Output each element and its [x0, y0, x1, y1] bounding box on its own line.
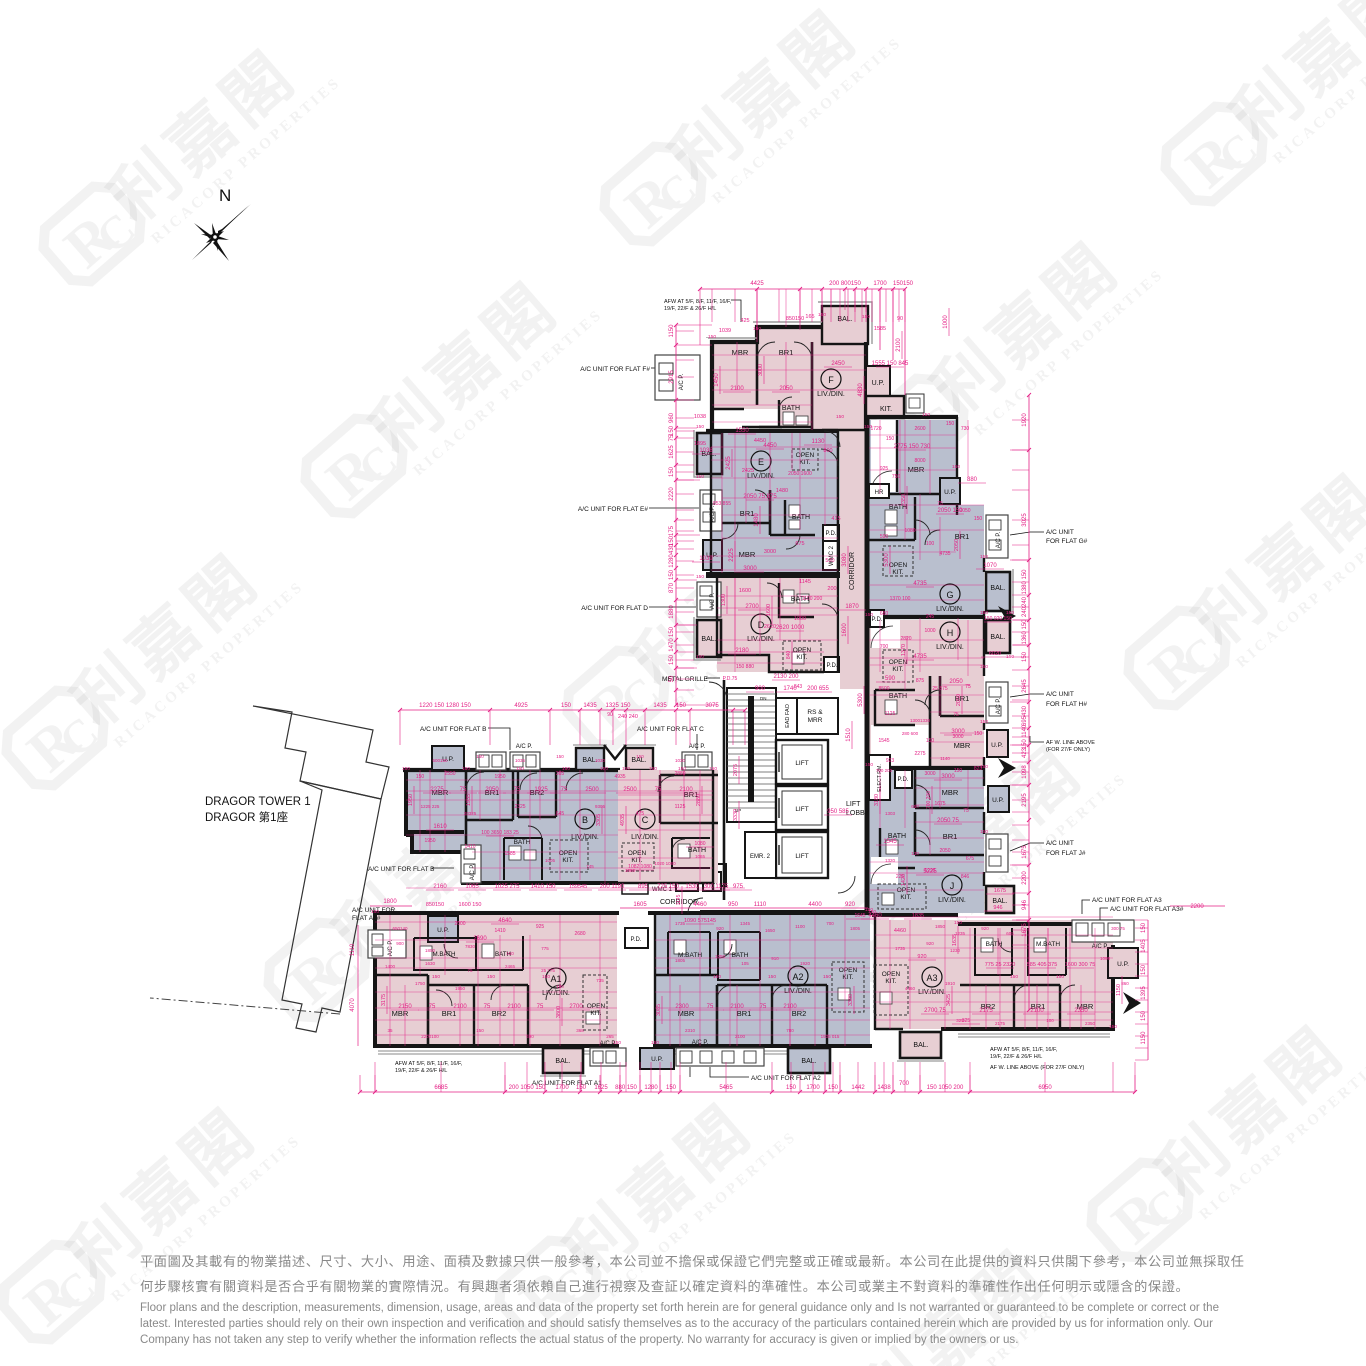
svg-text:150: 150: [922, 412, 930, 418]
svg-text:1039: 1039: [699, 556, 713, 562]
svg-text:2425: 2425: [726, 456, 732, 470]
svg-text:1098: 1098: [1100, 956, 1111, 961]
svg-text:75: 75: [484, 1004, 491, 1010]
svg-text:75: 75: [655, 787, 662, 793]
svg-text:N: N: [219, 186, 231, 205]
svg-text:1030: 1030: [675, 758, 686, 763]
svg-text:A/C UNIT FOR FLAT B: A/C UNIT FOR FLAT B: [368, 866, 434, 873]
svg-text:A/C P.: A/C P.: [710, 592, 716, 609]
svg-text:1405: 1405: [1141, 939, 1147, 953]
svg-text:1450: 1450: [714, 373, 720, 387]
svg-text:2180: 2180: [735, 648, 749, 654]
svg-text:1545: 1545: [878, 738, 889, 744]
svg-text:FOR FLAT G#: FOR FLAT G#: [1046, 538, 1088, 545]
svg-text:1130: 1130: [812, 439, 826, 445]
svg-text:368: 368: [576, 1028, 584, 1033]
svg-text:FOR FLAT H#: FOR FLAT H#: [1046, 701, 1087, 708]
svg-text:4735: 4735: [913, 654, 927, 660]
svg-text:2275: 2275: [430, 787, 444, 793]
svg-text:860: 860: [1121, 981, 1129, 986]
svg-text:1140: 1140: [940, 756, 950, 761]
svg-text:2620: 2620: [764, 624, 776, 630]
svg-text:150: 150: [926, 738, 935, 744]
svg-text:4640: 4640: [498, 918, 512, 924]
svg-text:1080: 1080: [625, 868, 636, 873]
svg-text:150: 150: [669, 466, 675, 477]
svg-text:BAL.: BAL.: [990, 634, 1005, 641]
svg-text:700: 700: [899, 1081, 910, 1087]
svg-text:900: 900: [755, 686, 766, 692]
svg-text:BATH: BATH: [782, 405, 800, 412]
svg-text:LIV./DIN.: LIV./DIN.: [936, 644, 964, 651]
svg-text:3080: 3080: [842, 553, 848, 567]
svg-text:BATH: BATH: [889, 693, 907, 700]
svg-text:150: 150: [462, 766, 470, 772]
svg-text:9305: 9305: [595, 804, 606, 809]
svg-text:U.P.: U.P.: [651, 1056, 663, 1063]
svg-text:A3: A3: [926, 973, 937, 983]
svg-text:605: 605: [1006, 931, 1014, 936]
svg-text:6950: 6950: [1038, 1085, 1052, 1091]
svg-text:1675: 1675: [934, 801, 945, 807]
svg-text:850150: 850150: [426, 902, 444, 908]
svg-text:20325: 20325: [464, 811, 477, 816]
svg-text:150: 150: [946, 421, 955, 427]
svg-text:P.D.75: P.D.75: [723, 676, 738, 682]
svg-text:415: 415: [831, 516, 840, 522]
svg-text:923: 923: [886, 758, 895, 764]
svg-text:325: 325: [956, 1018, 964, 1023]
svg-text:675: 675: [966, 856, 975, 862]
svg-text:775: 775: [541, 946, 549, 951]
svg-text:150150: 150150: [893, 281, 914, 287]
svg-text:2050: 2050: [779, 386, 793, 392]
svg-text:870: 870: [669, 582, 675, 593]
svg-text:OPEN: OPEN: [587, 1003, 606, 1010]
svg-text:1550: 1550: [735, 428, 749, 434]
svg-text:150: 150: [974, 516, 983, 522]
svg-text:2100: 2100: [507, 1004, 521, 1010]
svg-text:150: 150: [980, 554, 988, 560]
svg-text:latest. Interested parties sho: latest. Interested parties should rely o…: [140, 1318, 1213, 1330]
svg-text:2200100: 2200100: [421, 1034, 439, 1039]
svg-text:200: 200: [827, 586, 836, 592]
svg-text:225: 225: [896, 874, 905, 880]
svg-text:1110: 1110: [754, 902, 767, 908]
svg-text:AFW AT 5/F, 8/F, 11/F, 16/F,: AFW AT 5/F, 8/F, 11/F, 16/F,: [990, 1047, 1058, 1053]
svg-text:1280: 1280: [644, 1085, 658, 1091]
svg-text:2700: 2700: [569, 1004, 583, 1010]
svg-text:150: 150: [1022, 651, 1028, 662]
svg-text:1920: 1920: [800, 961, 811, 966]
svg-text:KIT.: KIT.: [842, 974, 853, 981]
svg-text:EAD FAO: EAD FAO: [785, 703, 791, 728]
svg-text:LIV./DIN.: LIV./DIN.: [817, 391, 845, 398]
svg-text:LIFT: LIFT: [795, 853, 808, 860]
svg-text:150: 150: [709, 766, 717, 772]
svg-text:1150: 1150: [669, 324, 675, 338]
svg-text:2195: 2195: [1022, 793, 1028, 807]
svg-text:1150: 1150: [1141, 1031, 1147, 1045]
svg-text:1600: 1600: [766, 604, 772, 616]
svg-text:19/F, 22/F & 26/F H/L: 19/F, 22/F & 26/F H/L: [990, 1054, 1042, 1060]
svg-text:3000: 3000: [924, 771, 935, 777]
svg-text:700 200: 700 200: [876, 768, 893, 773]
svg-text:3330: 3330: [733, 809, 739, 821]
svg-text:1410: 1410: [494, 928, 505, 934]
svg-text:2500: 2500: [623, 787, 637, 793]
svg-text:150: 150: [556, 754, 564, 759]
svg-text:2050: 2050: [956, 694, 962, 706]
svg-text:150: 150: [836, 414, 844, 420]
svg-text:245: 245: [926, 614, 935, 620]
svg-text:75: 75: [537, 1004, 544, 1010]
svg-text:946: 946: [1022, 899, 1028, 910]
svg-text:150: 150: [476, 754, 484, 759]
svg-text:150: 150: [954, 920, 962, 926]
svg-text:KIT.: KIT.: [892, 569, 903, 576]
svg-text:150: 150: [402, 766, 410, 772]
svg-text:A/C UNIT FOR FLAT B: A/C UNIT FOR FLAT B: [420, 726, 486, 733]
svg-text:LIFT: LIFT: [795, 760, 808, 767]
svg-text:1675: 1675: [994, 888, 1006, 894]
svg-text:300 1175: 300 1175: [704, 884, 729, 890]
svg-text:1600 150: 1600 150: [459, 902, 482, 908]
svg-text:H: H: [947, 628, 954, 638]
svg-text:425: 425: [740, 318, 749, 324]
svg-text:75: 75: [937, 501, 943, 507]
svg-text:75: 75: [707, 1004, 714, 1010]
svg-text:1835: 1835: [912, 913, 924, 919]
svg-text:75: 75: [965, 684, 971, 690]
svg-text:2200: 2200: [1190, 904, 1204, 910]
svg-text:2100: 2100: [730, 1004, 744, 1010]
svg-text:150: 150: [768, 974, 776, 980]
svg-text:130: 130: [911, 851, 919, 856]
svg-text:2150: 2150: [398, 1004, 412, 1010]
svg-text:3175: 3175: [381, 994, 387, 1006]
svg-text:2700 75: 2700 75: [924, 1008, 946, 1014]
svg-text:3025: 3025: [1022, 513, 1028, 527]
svg-text:2500: 2500: [585, 787, 599, 793]
svg-text:150: 150: [561, 703, 572, 709]
svg-text:200 655: 200 655: [807, 686, 829, 692]
svg-text:A/C UNIT FOR FLAT D: A/C UNIT FOR FLAT D: [581, 605, 648, 612]
svg-text:A/C UNIT FOR FLAT E#: A/C UNIT FOR FLAT E#: [578, 506, 648, 513]
svg-text:13001330: 13001330: [910, 718, 931, 723]
svg-text:1380 150: 1380 150: [1022, 569, 1028, 595]
svg-text:150 920 150: 150 920 150: [984, 616, 1012, 622]
svg-text:745: 745: [586, 864, 594, 869]
svg-text:1805: 1805: [675, 958, 686, 963]
svg-text:895: 895: [638, 884, 649, 890]
svg-text:8500: 8500: [878, 686, 889, 692]
svg-text:BR1: BR1: [737, 1009, 752, 1018]
svg-text:KIT.: KIT.: [885, 978, 896, 985]
svg-text:75: 75: [760, 1004, 767, 1010]
svg-text:1360 150: 1360 150: [1022, 619, 1028, 645]
svg-text:1625: 1625: [669, 445, 675, 459]
svg-text:LIV./DIN.: LIV./DIN.: [784, 988, 812, 995]
svg-text:1600 300 75: 1600 300 75: [1065, 962, 1096, 968]
svg-text:BR1: BR1: [442, 1009, 457, 1018]
svg-text:1438: 1438: [877, 1085, 891, 1091]
svg-text:MBR: MBR: [739, 550, 756, 559]
svg-text:2100: 2100: [783, 1004, 797, 1010]
svg-text:150: 150: [980, 719, 988, 725]
svg-text:25 775: 25 775: [541, 968, 555, 973]
svg-text:1750: 1750: [415, 981, 426, 986]
svg-text:Floor plans and the descriptio: Floor plans and the description, measure…: [140, 1302, 1219, 1314]
svg-text:AF W. LINE ABOVE (FOR 27/F ONL: AF W. LINE ABOVE (FOR 27/F ONLY): [990, 1065, 1085, 1071]
svg-text:1300: 1300: [721, 594, 727, 606]
svg-text:Company has not taken any step: Company has not taken any step to verify…: [140, 1334, 1018, 1346]
svg-text:AFW AT 5/F, 8/F, 11/F, 16/F,: AFW AT 5/F, 8/F, 11/F, 16/F,: [395, 1061, 463, 1067]
svg-text:590: 590: [885, 676, 896, 682]
svg-text:HR: HR: [875, 490, 884, 496]
svg-text:280 600: 280 600: [902, 731, 919, 736]
svg-text:3000: 3000: [952, 734, 963, 740]
svg-text:90: 90: [897, 316, 903, 322]
svg-text:1035: 1035: [515, 758, 526, 763]
svg-text:RS &: RS &: [807, 709, 823, 716]
svg-text:1650: 1650: [765, 928, 776, 933]
svg-text:A2: A2: [792, 972, 803, 982]
svg-text:5300: 5300: [858, 693, 864, 707]
svg-text:7830: 7830: [465, 944, 476, 949]
svg-text:75: 75: [669, 434, 675, 441]
svg-text:3000: 3000: [941, 774, 955, 780]
svg-text:1410: 1410: [464, 844, 475, 850]
svg-text:1225 225: 1225 225: [421, 804, 440, 809]
svg-text:946: 946: [993, 905, 1002, 911]
svg-text:2050: 2050: [485, 787, 499, 793]
svg-text:1100: 1100: [795, 924, 805, 929]
svg-text:1235: 1235: [955, 931, 966, 936]
svg-text:A/C P.: A/C P.: [388, 939, 394, 956]
svg-text:P.D.: P.D.: [872, 617, 883, 623]
svg-text:LIV./DIN.: LIV./DIN.: [631, 834, 659, 841]
svg-text:BAL.: BAL.: [992, 898, 1007, 905]
svg-text:1895: 1895: [694, 441, 706, 447]
svg-text:2050: 2050: [949, 679, 963, 685]
svg-text:2310: 2310: [685, 1028, 696, 1033]
svg-text:1125: 1125: [885, 711, 896, 717]
svg-text:2050: 2050: [959, 508, 970, 514]
svg-text:B: B: [582, 815, 588, 825]
svg-text:4935: 4935: [620, 814, 626, 826]
svg-text:3380: 3380: [848, 994, 854, 1006]
svg-text:850150: 850150: [786, 316, 804, 322]
svg-text:150: 150: [865, 612, 873, 618]
svg-text:75: 75: [514, 787, 521, 793]
svg-text:200 1050 150: 200 1050 150: [509, 1085, 546, 1091]
svg-text:4425: 4425: [750, 281, 764, 287]
svg-text:BAL.: BAL.: [801, 1058, 816, 1065]
svg-text:1280: 1280: [669, 554, 675, 568]
svg-text:KIT.: KIT.: [562, 857, 573, 864]
svg-text:240 240: 240 240: [618, 714, 638, 720]
svg-text:1555 150 845: 1555 150 845: [872, 361, 909, 367]
svg-text:BAL.: BAL.: [913, 1042, 928, 1049]
svg-text:P.D.: P.D.: [631, 937, 642, 943]
svg-text:2465: 2465: [505, 964, 516, 969]
svg-text:590: 590: [880, 534, 889, 540]
svg-text:920: 920: [981, 926, 989, 931]
svg-text:AF W. LINE ABOVE: AF W. LINE ABOVE: [1046, 740, 1095, 746]
svg-text:LIV./DIN.: LIV./DIN.: [918, 989, 946, 996]
svg-text:960: 960: [669, 412, 675, 423]
svg-text:1435: 1435: [583, 703, 597, 709]
svg-text:2880: 2880: [674, 771, 685, 777]
svg-text:2100: 2100: [730, 386, 744, 392]
svg-text:925: 925: [880, 466, 889, 472]
svg-text:3305: 3305: [596, 814, 602, 826]
svg-text:BAL.: BAL.: [701, 636, 716, 643]
svg-text:1675: 1675: [1022, 845, 1028, 859]
svg-text:1805: 1805: [850, 926, 861, 931]
svg-text:2100: 2100: [1030, 1008, 1044, 1014]
svg-text:700 200: 700 200: [926, 791, 932, 809]
svg-text:1630: 1630: [425, 961, 436, 966]
svg-text:A/C P.: A/C P.: [679, 373, 685, 390]
svg-text:920: 920: [845, 902, 856, 908]
svg-text:150: 150: [1010, 974, 1018, 980]
svg-text:240240: 240240: [1022, 596, 1028, 617]
svg-text:1410 150: 1410 150: [530, 884, 556, 890]
svg-text:A/C UNIT FOR FLAT C: A/C UNIT FOR FLAT C: [637, 726, 704, 733]
svg-text:475: 475: [636, 811, 645, 817]
svg-text:1700: 1700: [806, 1085, 820, 1091]
svg-text:846: 846: [961, 874, 970, 880]
svg-text:LIV./DIN.: LIV./DIN.: [747, 473, 775, 480]
svg-text:BATH: BATH: [514, 839, 531, 846]
svg-text:950 585: 950 585: [827, 809, 849, 815]
svg-text:KIT.: KIT.: [892, 666, 903, 673]
svg-text:150: 150: [516, 766, 524, 772]
svg-text:U.P.: U.P.: [944, 489, 956, 496]
svg-text:A/C UNIT FOR FLAT A3: A/C UNIT FOR FLAT A3: [1092, 897, 1162, 904]
svg-text:750: 750: [892, 474, 901, 480]
svg-text:4735: 4735: [913, 581, 927, 587]
svg-text:1070: 1070: [983, 563, 997, 569]
svg-text:1050: 1050: [715, 954, 726, 959]
svg-text:2425: 2425: [742, 468, 754, 474]
svg-text:A/C UNIT FOR FLAT A2: A/C UNIT FOR FLAT A2: [751, 1075, 821, 1082]
svg-text:A/C P.: A/C P.: [996, 531, 1002, 548]
svg-text:423: 423: [1022, 747, 1028, 758]
svg-text:19/F, 22/F & 26/F H/L: 19/F, 22/F & 26/F H/L: [664, 306, 716, 312]
svg-text:200 800150: 200 800150: [829, 281, 861, 287]
svg-text:1600: 1600: [739, 588, 751, 594]
svg-text:200 1190: 200 1190: [600, 884, 625, 890]
svg-text:150: 150: [980, 829, 988, 835]
svg-text:2050 75 875: 2050 75 875: [743, 494, 777, 500]
svg-text:1910: 1910: [945, 981, 956, 986]
svg-text:2645: 2645: [1022, 679, 1028, 693]
svg-text:1510: 1510: [846, 728, 852, 742]
svg-text:1080: 1080: [904, 528, 915, 534]
svg-text:975: 975: [733, 884, 744, 890]
svg-text:平面圖及其載有的物業描述、尺寸、大小、用途、面積及數據只供一: 平面圖及其載有的物業描述、尺寸、大小、用途、面積及數據只供一般參考，本公司並不擔…: [140, 1253, 1245, 1269]
svg-text:U.P.: U.P.: [872, 380, 885, 387]
svg-text:920: 920: [917, 954, 926, 960]
svg-text:2350: 2350: [1074, 1008, 1088, 1014]
svg-text:700: 700: [880, 644, 889, 650]
svg-text:1645: 1645: [854, 913, 865, 919]
svg-text:2100: 2100: [679, 787, 693, 793]
svg-text:90: 90: [607, 712, 613, 718]
svg-text:150: 150: [432, 974, 440, 980]
svg-text:2175: 2175: [979, 1008, 993, 1014]
svg-text:950: 950: [728, 902, 739, 908]
svg-text:BAL.: BAL.: [837, 316, 852, 323]
svg-text:150 1050 200: 150 1050 200: [927, 1085, 964, 1091]
svg-text:2820: 2820: [900, 636, 911, 642]
svg-text:4070: 4070: [350, 998, 356, 1012]
svg-text:2200: 2200: [1022, 871, 1028, 885]
svg-text:75: 75: [953, 712, 959, 718]
svg-text:MRR: MRR: [808, 717, 823, 724]
svg-text:150: 150: [708, 334, 716, 340]
svg-text:U.P.: U.P.: [1117, 961, 1129, 968]
svg-text:150: 150: [669, 626, 675, 637]
svg-text:1600: 1600: [842, 623, 848, 637]
svg-text:2325: 2325: [514, 804, 525, 810]
svg-text:1935 015: 1935 015: [821, 1034, 840, 1039]
svg-text:4925: 4925: [514, 703, 528, 709]
svg-text:LIFT: LIFT: [795, 806, 808, 813]
svg-text:725 150: 725 150: [657, 884, 679, 890]
svg-text:1700: 1700: [555, 1085, 569, 1091]
svg-text:2300: 2300: [675, 1004, 689, 1010]
svg-text:4400: 4400: [808, 902, 822, 908]
svg-text:F: F: [828, 375, 834, 385]
svg-text:A/C UNIT FOR FLAT A3#: A/C UNIT FOR FLAT A3#: [1110, 906, 1184, 913]
svg-text:150: 150: [954, 768, 963, 774]
svg-text:150: 150: [952, 464, 960, 470]
svg-text:BR1: BR1: [740, 509, 755, 518]
svg-text:2160: 2160: [433, 884, 447, 890]
svg-text:MBR: MBR: [942, 788, 959, 797]
svg-text:1039: 1039: [719, 328, 731, 334]
svg-text:175: 175: [669, 525, 675, 536]
svg-text:4460: 4460: [693, 902, 707, 908]
svg-text:530: 530: [825, 558, 834, 564]
svg-text:2130 200: 2130 200: [773, 674, 799, 680]
svg-text:2700: 2700: [745, 604, 759, 610]
svg-text:150: 150: [476, 1028, 484, 1033]
svg-text:1850: 1850: [935, 924, 946, 929]
svg-text:300 75: 300 75: [1111, 926, 1125, 931]
svg-text:1442: 1442: [851, 1085, 865, 1091]
svg-text:2690: 2690: [473, 936, 487, 942]
svg-text:U.P.: U.P.: [437, 927, 449, 934]
svg-text:2550: 2550: [444, 771, 455, 777]
svg-text:75: 75: [561, 787, 568, 793]
svg-text:4830: 4830: [858, 383, 864, 397]
svg-text:1370: 1370: [901, 644, 907, 656]
svg-text:LOBBY: LOBBY: [846, 810, 870, 817]
svg-text:150: 150: [980, 610, 988, 616]
svg-text:1000: 1000: [943, 315, 949, 329]
svg-text:1098: 1098: [1022, 765, 1028, 779]
svg-text:1230: 1230: [950, 948, 961, 953]
svg-text:150: 150: [636, 754, 644, 759]
svg-text:A/C UNIT: A/C UNIT: [1046, 529, 1074, 536]
svg-text:150: 150: [1006, 610, 1014, 616]
svg-text:3425: 3425: [946, 994, 952, 1006]
